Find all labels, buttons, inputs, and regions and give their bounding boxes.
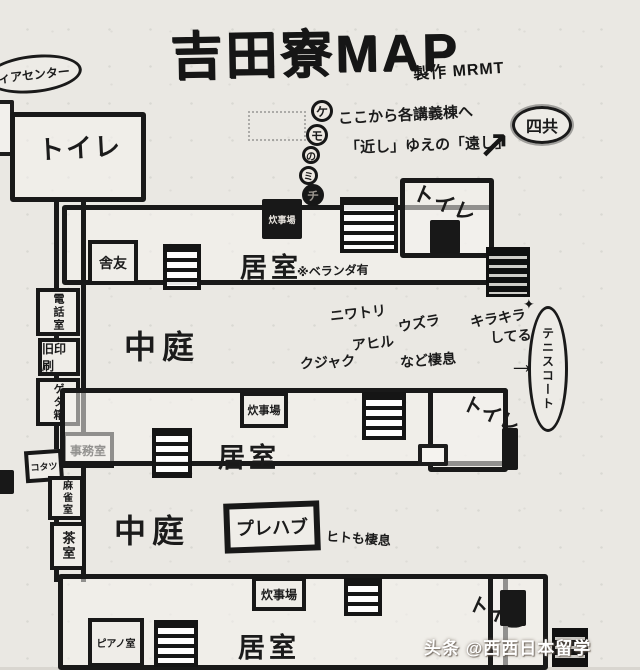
stairs-icon [152, 428, 192, 478]
small-room [418, 444, 448, 466]
media-center-label: ィアセンター [0, 62, 71, 86]
wing2-kitchen-label: 炊事場 [248, 402, 281, 418]
dark-room [430, 220, 460, 254]
dark-room [500, 590, 526, 626]
shayu-room-box: 舎友 [88, 240, 138, 285]
toutiao-logo-icon: 头条 [424, 639, 460, 658]
yonkyo-oval: 四共 [512, 106, 572, 144]
trail-circle: ケ [311, 100, 333, 122]
trail-char: モ [311, 127, 323, 144]
watermark: 头条 @西西日本留学 [424, 634, 591, 659]
stairs-icon [163, 244, 201, 290]
animal-quail: ウズラ [397, 310, 442, 337]
photocopy-artifact [248, 111, 306, 141]
media-center-oval: ィアセンター [0, 50, 84, 98]
phone-room-box: 電話室 [36, 288, 80, 336]
animal-peacock: クジャク [300, 351, 356, 374]
old-print-label: 旧印刷 [42, 340, 76, 374]
prefab-label: プレハブ [236, 513, 309, 541]
courtyard1-label: 中庭 [124, 322, 200, 368]
mahjong-box: 麻雀室 [48, 476, 84, 520]
wall-fragment [0, 470, 14, 494]
shayu-label: 舎友 [99, 253, 127, 273]
stairs-icon [344, 578, 382, 616]
scanned-map-page: 吉田寮MAP 製作 MRMT ィアセンター トイレ 炊事場 トイレ 舎友 居室 … [0, 0, 640, 667]
prefab-box: プレハブ [223, 500, 321, 553]
wing1-kitchen-box: 炊事場 [262, 199, 302, 239]
veranda-note: ※ベランダ有 [297, 261, 369, 280]
piano-room-label: ピアノ室 [96, 635, 135, 650]
trail-char: の [306, 148, 316, 163]
wing1-kitchen-label: 炊事場 [268, 213, 295, 226]
animal-duck: アヒル [351, 331, 395, 355]
wing3-room-label: 居室 [238, 626, 300, 665]
courtyard2-label: 中庭 [114, 506, 190, 552]
trail-char: チ [307, 187, 319, 204]
stairs-icon [340, 197, 398, 253]
wing1-toilet-nw-label: トイレ [37, 126, 123, 167]
tea-room-label: 茶室 [59, 531, 78, 561]
inhabit-note: など棲息 [399, 348, 456, 372]
stairs-icon [362, 392, 406, 440]
stairs-icon [154, 620, 198, 667]
tennis-court-oval: テニスコート [528, 306, 568, 432]
map-credit: 製作 MRMT [412, 54, 505, 84]
trail-char: ケ [316, 103, 328, 120]
wing3-kitchen-label: 炊事場 [261, 586, 297, 603]
mahjong-label: 麻雀室 [59, 480, 74, 516]
wing2-kitchen-box: 炊事場 [240, 392, 288, 428]
sparkle-icon: ✦ [523, 296, 535, 313]
sparkle-note-2: してる [489, 325, 532, 348]
watermark-handle: @西西日本留学 [466, 639, 592, 658]
kotatsu-label: コタツ [30, 459, 58, 474]
wing1-room-label: 居室 [240, 246, 302, 285]
trail-note-1: ここから各講義棟へ [338, 100, 474, 128]
trail-circle: モ [306, 124, 328, 146]
phone-room-label: 電話室 [50, 293, 66, 332]
tea-room-box: 茶室 [50, 522, 86, 570]
northeast-arrow-icon: ↗ [478, 124, 510, 169]
trail-circle: ミ [299, 166, 318, 185]
wing2-room-label: 居室 [218, 436, 280, 475]
yonkyo-label: 四共 [526, 113, 558, 137]
dark-stairs-icon [486, 247, 530, 297]
animal-chicken: ニワトリ [329, 300, 387, 326]
old-print-box: 旧印刷 [38, 338, 80, 376]
dark-room [502, 428, 518, 470]
trail-circle: の [302, 146, 320, 164]
human-inhabit-note: ヒトも棲息 [325, 526, 391, 549]
trail-circle-dark: チ [302, 184, 324, 206]
tennis-court-label: テニスコート [540, 327, 557, 411]
trail-char: ミ [304, 168, 314, 183]
wing3-kitchen-box: 炊事場 [252, 577, 306, 611]
piano-room-box: ピアノ室 [88, 618, 144, 667]
